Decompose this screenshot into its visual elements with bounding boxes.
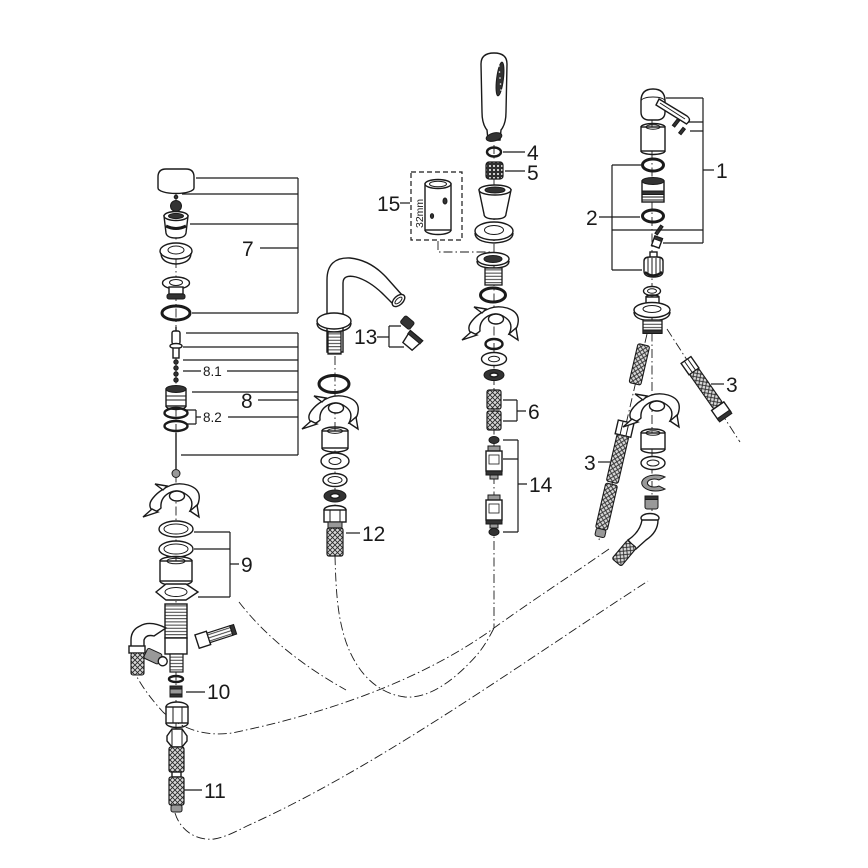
callout-5: 5 [527,162,539,185]
mounting-clamp [623,394,679,427]
bracket-8 [181,333,298,455]
washer [482,353,507,366]
flanged-ring [475,222,513,243]
left-column-waste-assembly [129,169,237,812]
c-clip [642,475,665,491]
dimension-32mm: 32mm [414,199,426,228]
o-ring [643,210,664,222]
flanged-threaded-piece [477,253,509,286]
check-valve-a [486,446,502,479]
filter-insert-5 [486,162,503,179]
pull-rod-upper [170,327,182,358]
callout-13: 13 [354,326,377,349]
handle-column [592,89,732,566]
cartridge-dome [644,252,663,277]
pull-rod-lower [172,433,180,478]
connection-hose-right-3 [679,356,731,422]
mounting-clamp [462,307,518,340]
dark-washer [484,370,504,381]
adapter-sleeve-10 [170,686,182,697]
bracket-1 [612,98,714,243]
bracket-6 [503,400,526,421]
small-nut [645,496,658,509]
callout-8: 8 [241,390,253,413]
knob-ball [171,201,182,212]
o-ring-washer [641,457,665,470]
spout-shank [328,332,341,354]
callout-11: 11 [204,780,226,803]
shower-holder-cone [479,185,511,219]
lever-handle [641,89,689,124]
extension-cylinder [425,180,451,235]
knurled-bushing [166,386,186,410]
hex-nut [167,729,187,747]
handle-sleeve [641,124,665,155]
o-ring [481,288,506,302]
cap [158,169,194,194]
cartridge-ring [642,178,664,203]
callout-1: 1 [716,160,728,183]
callout-3-right: 3 [726,374,738,397]
callout-8-1: 8.1 [203,364,222,379]
callout-7: 7 [242,238,254,261]
callout-8-2: 8.2 [203,410,222,425]
mounting-clamp [302,396,358,429]
spacer-cylinder [322,427,348,452]
spout-assembly [302,258,423,556]
bracket-9 [194,532,239,597]
check-valve-b [486,495,502,528]
valve-cup [164,212,188,239]
retaining-ring [644,287,661,296]
callout-9: 9 [241,554,253,577]
diagonal-routing-b [175,581,648,839]
callout-14: 14 [529,474,553,497]
elbow-fitting [612,514,659,567]
body-hose-routing-arc [239,602,346,690]
o-ring [643,159,664,171]
mounting-nut-9 [156,584,198,600]
bracket-14 [503,440,527,532]
callout-12: 12 [362,523,385,546]
spout-hose-routing [335,556,494,697]
drain-flange [163,277,190,299]
pin [174,195,178,199]
small-insert [652,236,663,248]
callout-3-left: 3 [584,452,596,475]
spacer-cylinder-9 [160,557,192,586]
escutcheon-base [634,295,670,334]
faucet-body [129,604,237,675]
exploded-diagram: 32mm [0,0,868,868]
bracket-13 [377,326,404,347]
hose-nut-12 [324,506,346,557]
washer [321,453,349,469]
stick-hand-shower [481,53,507,143]
aerator-parts-13 [400,315,423,351]
spout-flange [317,313,351,332]
bracket-7 [182,178,298,313]
parts-diagram-page: 32mm [0,0,868,868]
o-ring-washer [323,474,347,487]
callout-15: 15 [377,193,400,216]
callout-6: 6 [528,401,540,424]
hand-shower-column [462,53,518,536]
braided-hose-11 [169,747,184,812]
callout-10: 10 [207,681,230,704]
o-ring [319,376,349,393]
dark-o-ring [489,529,499,536]
dark-o-ring [489,437,499,444]
washer-set-9 [159,521,193,557]
callout-2: 2 [586,207,598,230]
dark-washer [324,490,346,502]
mounting-clamp [143,484,199,517]
union-nut [166,702,188,728]
bracket-2 [599,165,642,270]
spacer-cylinder [641,429,665,453]
